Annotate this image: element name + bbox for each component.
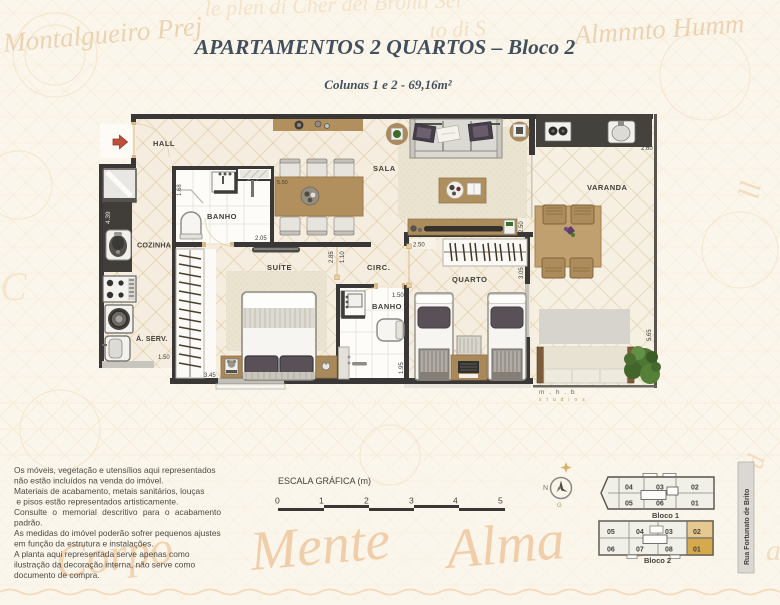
svg-text:Á. SERV.: Á. SERV. (136, 334, 168, 343)
svg-text:4.39: 4.39 (105, 211, 112, 224)
svg-text:Alma: Alma (440, 509, 567, 581)
svg-text:02: 02 (691, 485, 699, 492)
svg-text:04: 04 (636, 529, 644, 536)
svg-text:SUÍTE: SUÍTE (267, 263, 292, 272)
svg-text:Bloco 1: Bloco 1 (652, 511, 679, 520)
svg-text:a: a (766, 534, 780, 567)
svg-text:CIRC.: CIRC. (367, 263, 390, 272)
svg-text:03: 03 (665, 529, 673, 536)
svg-text:As medidas do imóvel poderão s: As medidas do imóvel poderão sofrer pequ… (14, 528, 221, 538)
svg-text:Materiais de acabamento, metai: Materiais de acabamento, metais sanitári… (14, 486, 204, 496)
svg-text:1.50: 1.50 (392, 293, 404, 299)
svg-text:1.50: 1.50 (158, 355, 170, 361)
svg-text:1: 1 (319, 496, 324, 506)
svg-text:ilustração da decoração intern: ilustração da decoração interna, não ser… (14, 560, 195, 570)
svg-text:2.50: 2.50 (413, 243, 425, 249)
svg-text:3: 3 (409, 496, 414, 506)
svg-text:05: 05 (625, 501, 633, 508)
svg-text:padrão.: padrão. (14, 518, 42, 528)
svg-text:05: 05 (607, 529, 615, 536)
svg-text:2: 2 (364, 496, 369, 506)
svg-text:Os móveis, vegetação e utensíl: Os móveis, vegetação e utensílios aqui r… (14, 465, 216, 475)
svg-text:07: 07 (636, 547, 644, 554)
svg-text:A planta aqui representada ser: A planta aqui representada serve apenas … (14, 549, 190, 559)
svg-text:03: 03 (656, 485, 664, 492)
svg-text:SALA: SALA (373, 164, 396, 173)
svg-text:1.68: 1.68 (177, 184, 183, 196)
svg-text:06: 06 (656, 501, 664, 508)
svg-text:Mente: Mente (247, 509, 393, 583)
svg-text:2.50: 2.50 (519, 221, 525, 233)
svg-text:5.50: 5.50 (277, 180, 288, 186)
svg-text:5: 5 (498, 496, 503, 506)
svg-text:Colunas 1 e 2 - 69,16m²: Colunas 1 e 2 - 69,16m² (324, 77, 453, 92)
svg-text:APARTAMENTOS 2 QUARTOS – Bloco: APARTAMENTOS 2 QUARTOS – Bloco 2 (193, 35, 576, 59)
svg-text:2.85: 2.85 (329, 251, 335, 263)
svg-text:QUARTO: QUARTO (452, 275, 487, 284)
svg-text:3.45: 3.45 (204, 373, 216, 379)
svg-text:não estão incluídos na venda d: não estão incluídos na venda do imóvel. (14, 476, 163, 486)
svg-text:BANHO: BANHO (207, 212, 237, 221)
svg-text:1.95: 1.95 (399, 362, 405, 374)
svg-text:N: N (543, 485, 548, 492)
svg-text:2.60: 2.60 (641, 146, 653, 152)
svg-text:m . h . b: m . h . b (539, 389, 576, 396)
svg-text:0: 0 (275, 496, 280, 506)
svg-text:5.65: 5.65 (647, 329, 653, 341)
svg-text:VARANDA: VARANDA (587, 183, 628, 192)
svg-text:Bloco 2: Bloco 2 (644, 556, 671, 565)
svg-text:01: 01 (691, 501, 699, 508)
svg-text:3.05: 3.05 (519, 267, 525, 279)
svg-text:06: 06 (607, 547, 615, 554)
svg-text:documento de compra.: documento de compra. (14, 570, 100, 580)
svg-text:02: 02 (693, 529, 701, 536)
svg-text:COZINHA: COZINHA (137, 241, 171, 250)
svg-text:HALL: HALL (153, 139, 175, 148)
svg-text:ESCALA GRÁFICA (m): ESCALA GRÁFICA (m) (278, 476, 371, 486)
svg-text:s t u d i o s: s t u d i o s (539, 397, 587, 403)
svg-text:08: 08 (665, 547, 673, 554)
svg-text:4: 4 (453, 496, 458, 506)
svg-text:Rua Fortunato de Brito: Rua Fortunato de Brito (744, 489, 751, 565)
svg-text:2.05: 2.05 (255, 236, 267, 242)
svg-text:1.10: 1.10 (340, 251, 346, 263)
svg-text:04: 04 (625, 485, 633, 492)
svg-text:em função da estrutura e insta: em função da estrutura e instalações. (14, 539, 154, 549)
svg-text:C: C (0, 264, 28, 309)
svg-text:01: 01 (693, 547, 701, 554)
svg-text:e pisos estão representados ar: e pisos estão representados artisticamen… (14, 497, 178, 507)
svg-text:BANHO: BANHO (372, 302, 402, 311)
svg-text:Consulte o memorial descritivo: Consulte o memorial descritivo para o ac… (14, 507, 221, 517)
svg-text:G: G (557, 503, 562, 509)
